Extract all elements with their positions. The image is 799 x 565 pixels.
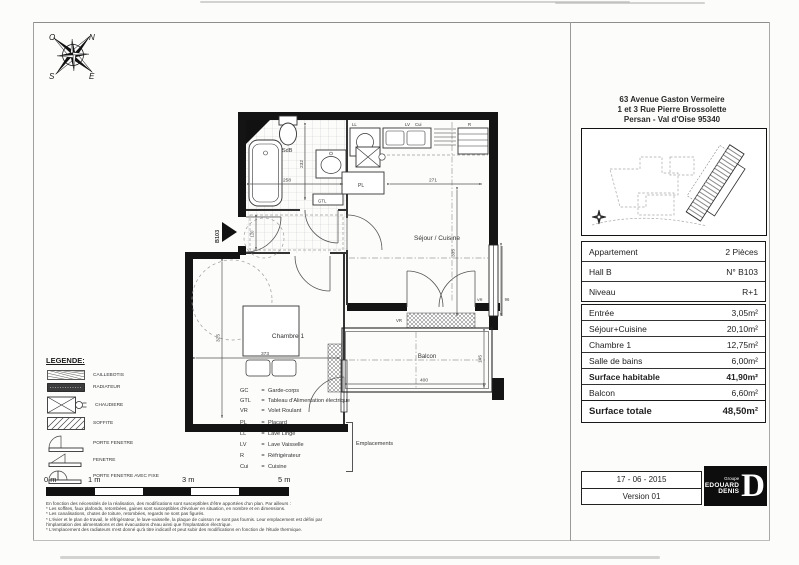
total-value: 48,50m² xyxy=(723,406,758,417)
label-sejour: Séjour / Cuisine xyxy=(414,235,460,242)
abbr-row: R=Réfrigérateur xyxy=(240,453,301,459)
scale-segment xyxy=(143,488,191,495)
scale-3m: 3 m xyxy=(182,475,195,484)
surface-value: 3,05m² xyxy=(732,308,758,318)
compass-o: O xyxy=(49,33,55,42)
legend-item: SOFFITE xyxy=(47,417,113,430)
equals: = xyxy=(258,442,268,448)
abbr-row: GC=Garde-corps xyxy=(240,388,299,394)
scale-bar xyxy=(46,487,289,496)
info-value: 2 Pièces xyxy=(725,247,758,257)
project-address: 63 Avenue Gaston Vermeire 1 et 3 Rue Pie… xyxy=(576,95,768,125)
scale-segment xyxy=(191,488,239,495)
dim-258: 258 xyxy=(283,178,291,184)
surface-label: Séjour+Cuisine xyxy=(589,324,647,334)
dim-145: 145 xyxy=(478,355,484,363)
address-line-2: 1 et 3 Rue Pierre Brossolette xyxy=(576,105,768,115)
table-row: Niveau R+1 xyxy=(582,281,765,301)
dim-271: 271 xyxy=(429,178,437,184)
footnote-line: * L'emplacement des radiateurs n'est don… xyxy=(46,527,561,532)
equals: = xyxy=(258,408,268,414)
surface-label: Entrée xyxy=(589,308,614,318)
frame-bottom xyxy=(33,540,770,541)
abbr: PL xyxy=(240,420,258,426)
dim-335: 335 xyxy=(451,249,457,257)
logo-name2: DENIS xyxy=(705,489,739,496)
emplacements-bracket xyxy=(346,422,353,472)
equals: = xyxy=(258,464,268,470)
scale-0m: 0 m xyxy=(44,475,57,484)
abbr-label: Cuisine xyxy=(268,464,287,470)
plan-date: 17 - 06 - 2015 xyxy=(582,472,701,488)
surfaces-table: Entrée 3,05m² Séjour+Cuisine 20,10m² Cha… xyxy=(581,304,766,401)
fenetre-icon xyxy=(47,453,85,467)
date-version-box: 17 - 06 - 2015 Version 01 xyxy=(581,471,702,505)
surface-label: Chambre 1 xyxy=(589,340,631,350)
caillebotis-icon xyxy=(47,370,85,380)
table-row: Salle de bains 6,00m² xyxy=(582,352,765,368)
abbr-row: GTL=Tableau d'Alimentation électrique xyxy=(240,398,350,404)
label-gtl: GTL xyxy=(318,199,327,204)
abbr-row: VR=Volet Roulant xyxy=(240,408,301,414)
bed xyxy=(243,306,299,376)
legend-label: FENETRE xyxy=(93,458,115,463)
frame-top xyxy=(33,22,770,23)
abbr: LV xyxy=(240,442,258,448)
table-row: Hall B N° B103 xyxy=(582,261,765,281)
abbr: GC xyxy=(240,388,258,394)
equals: = xyxy=(258,388,268,394)
compass-e: E xyxy=(89,72,95,81)
scale-5m: 5 m xyxy=(278,475,291,484)
site-plan-box xyxy=(581,128,767,236)
info-value: N° B103 xyxy=(726,267,758,277)
info-label: Appartement xyxy=(589,247,638,257)
scale-segment xyxy=(47,488,95,495)
surface-value: 20,10m² xyxy=(727,324,758,334)
site-plan-drawing xyxy=(582,129,765,234)
equals: = xyxy=(258,431,268,437)
label-b103: B103 xyxy=(215,230,221,243)
table-row: Séjour+Cuisine 20,10m² xyxy=(582,320,765,336)
scale-segment xyxy=(95,488,143,495)
abbr-row: Cui=Cuisine xyxy=(240,464,287,470)
soffite-icon xyxy=(47,417,85,430)
abbr-label: Volet Roulant xyxy=(268,408,301,414)
abbr-label: Tableau d'Alimentation électrique xyxy=(268,398,350,404)
compass-rose-icon: N O E S xyxy=(42,24,104,86)
emplacements-label: Emplacements xyxy=(356,441,393,447)
porte-fenetre-icon xyxy=(47,434,85,452)
abbr-row: PL=Placard xyxy=(240,420,287,426)
apartment-floor-plan: SdB Séjour / Cuisine Chambre 1 Balcon LL… xyxy=(165,95,525,475)
info-label: Hall B xyxy=(589,267,612,277)
plan-version: Version 01 xyxy=(582,488,701,505)
surface-label: Surface habitable xyxy=(589,372,660,382)
legend-label: SOFFITE xyxy=(93,421,113,426)
abbr-label: Réfrigérateur xyxy=(268,453,301,459)
abbr: VR xyxy=(240,408,258,414)
legend-label: CAILLEBOTIS xyxy=(93,373,124,378)
label-vr2: VR xyxy=(477,297,483,302)
label-sdb: SdB xyxy=(282,148,293,154)
compass-s: S xyxy=(49,72,55,81)
logo-letter-d: D xyxy=(741,471,765,501)
abbr-label: Placard xyxy=(268,420,287,426)
surface-label: Balcon xyxy=(589,388,615,398)
dim-96: 96 xyxy=(505,297,510,302)
legend-item: CHAUDIERE xyxy=(47,396,123,414)
dim-373: 373 xyxy=(261,351,269,357)
label-r: R xyxy=(468,122,471,127)
frame-divider xyxy=(570,22,571,541)
dim-325: 325 xyxy=(216,334,222,342)
legend-label: CHAUDIERE xyxy=(95,403,123,408)
abbr-label: Lave Vaisselle xyxy=(268,442,304,448)
surface-value: 6,00m² xyxy=(732,356,758,366)
floor-plan-page: N O E S xyxy=(0,0,799,565)
surface-value: 12,75m² xyxy=(727,340,758,350)
address-line-3: Persan - Val d'Oise 95340 xyxy=(576,115,768,125)
chaudiere-icon xyxy=(47,396,87,414)
logo-text: Groupe EDOUARD DENIS xyxy=(705,476,739,496)
label-lv: LV xyxy=(405,122,410,127)
legend-label: PORTE FENETRE xyxy=(93,441,133,446)
equals: = xyxy=(258,453,268,459)
total-label: Surface totale xyxy=(589,406,652,417)
legend-label: PORTE FENETRE AVEC FIXE xyxy=(93,474,159,479)
apartment-info-table: Appartement 2 Pièces Hall B N° B103 Nive… xyxy=(581,241,766,302)
dim-232: 232 xyxy=(299,160,305,168)
edouard-denis-logo: Groupe EDOUARD DENIS D xyxy=(704,466,767,506)
legend-item: RADIATEUR xyxy=(47,383,120,392)
address-line-1: 63 Avenue Gaston Vermeire xyxy=(576,95,768,105)
label-cui: Cui xyxy=(415,122,421,127)
legend-title: LEGENDE: xyxy=(46,356,85,365)
entrance-arrow-icon xyxy=(222,222,237,242)
dim-400: 400 xyxy=(420,378,428,384)
abbr: R xyxy=(240,453,258,459)
scan-smudge xyxy=(60,556,660,559)
dim-120: 120 xyxy=(250,230,255,238)
table-row-surface-habitable: Surface habitable 41,90m² xyxy=(582,368,765,384)
surface-label: Salle de bains xyxy=(589,356,642,366)
legend-item: PORTE FENETRE AVEC FIXE xyxy=(47,468,159,484)
compass-n: N xyxy=(89,33,95,42)
label-chambre: Chambre 1 xyxy=(272,333,305,340)
legend-item: PORTE FENETRE xyxy=(47,434,133,452)
legend-item: FENETRE xyxy=(47,453,115,467)
surface-value: 41,90m² xyxy=(726,372,758,382)
abbr-label: Lave Linge xyxy=(268,431,295,437)
frame-right xyxy=(769,22,770,541)
info-label: Niveau xyxy=(589,287,615,297)
scale-1m: 1 m xyxy=(88,475,101,484)
legend-label: RADIATEUR xyxy=(93,385,120,390)
equals: = xyxy=(258,398,268,404)
table-row: Entrée 3,05m² xyxy=(582,305,765,320)
abbr: LL xyxy=(240,431,258,437)
table-row: Chambre 1 12,75m² xyxy=(582,336,765,352)
scan-smudge xyxy=(555,2,705,4)
surface-value: 6,60m² xyxy=(732,388,758,398)
balcony xyxy=(328,313,492,392)
info-value: R+1 xyxy=(742,287,758,297)
abbr-row: LV=Lave Vaisselle xyxy=(240,442,304,448)
scale-segment xyxy=(239,488,288,495)
label-ll: LL xyxy=(352,122,357,127)
table-row: Appartement 2 Pièces xyxy=(582,242,765,261)
abbr-row: LL=Lave Linge xyxy=(240,431,295,437)
total-surface-table: Surface totale 48,50m² xyxy=(581,400,766,423)
label-vr: VR xyxy=(396,318,402,323)
label-balcon: Balcon xyxy=(418,354,436,360)
table-row-surface-totale: Surface totale 48,50m² xyxy=(582,401,765,422)
equals: = xyxy=(258,420,268,426)
label-pl: PL xyxy=(358,183,364,189)
table-row: Balcon 6,60m² xyxy=(582,384,765,400)
abbr: GTL xyxy=(240,398,258,404)
footnotes: En fonction des nécessités de la réalisa… xyxy=(46,501,561,532)
abbr-label: Garde-corps xyxy=(268,388,299,394)
abbr: Cui xyxy=(240,464,258,470)
legend-item: CAILLEBOTIS xyxy=(47,370,124,380)
frame-left xyxy=(33,22,34,541)
radiateur-icon xyxy=(47,383,85,392)
